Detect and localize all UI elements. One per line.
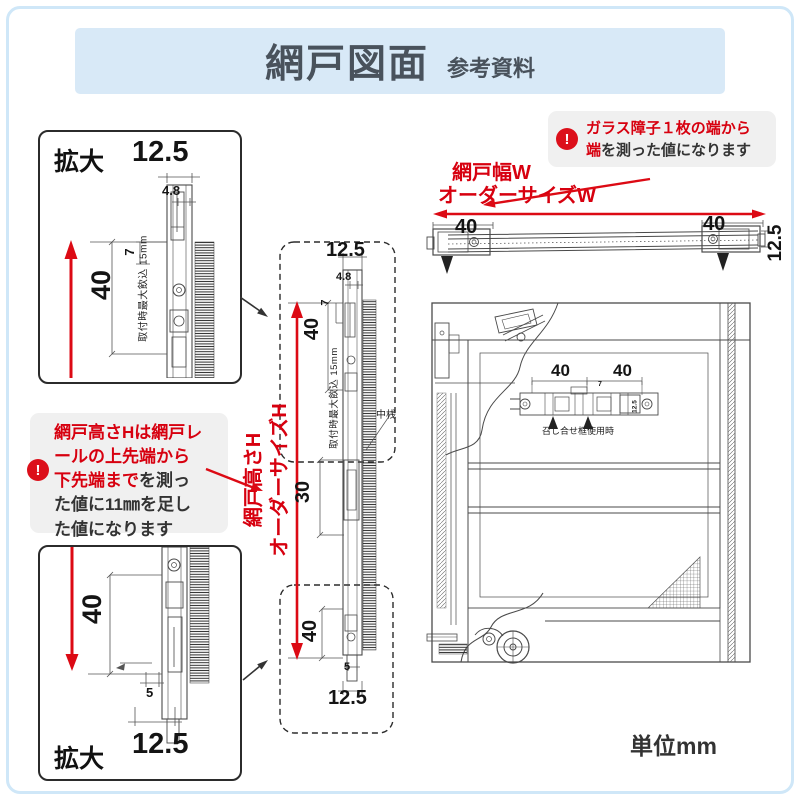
height-note-seg2: ールの上先端から xyxy=(54,447,190,466)
dim-12-5-top: 12.5 xyxy=(326,240,365,260)
glass-note-line1: ガラス障子１枚の端から xyxy=(586,120,751,137)
unit-note: 単位mm xyxy=(630,727,717,761)
height-note-seg3-red: 下先端まで xyxy=(54,471,139,490)
top-view-drawing xyxy=(425,195,785,287)
dim-12-5-depth: 12.5 xyxy=(762,222,788,264)
height-note-seg1: 網戸高さHは網戸レ xyxy=(54,423,202,442)
alert-icon: ! xyxy=(556,128,578,150)
glass-note-text: ガラス障子１枚の端から 端を測った値になります xyxy=(586,118,751,162)
height-note-seg3: を測っ xyxy=(139,471,190,490)
height-note-seg5: た値になります xyxy=(54,520,173,539)
dim-12-5: 12.5 xyxy=(132,730,188,759)
detail-box-top: 拡大 12.5 4.8 7 40 取付時最大飲込 15mm xyxy=(38,130,242,384)
dim-40-bottom: 40 xyxy=(298,618,322,644)
rail-profile xyxy=(343,270,362,681)
dim-40-right: 40 xyxy=(703,214,725,234)
engagement-note: 取付時最大飲込 15mm xyxy=(136,229,149,349)
dim-4-8: 4.8 xyxy=(162,184,180,197)
dim-12-5-small: 12.5 xyxy=(632,397,641,417)
detail-bottom-title: 拡大 xyxy=(54,739,104,775)
dim-7-small: 7 xyxy=(598,381,602,388)
dim-40-right: 40 xyxy=(613,362,632,379)
brush-hatch xyxy=(195,242,214,378)
glass-note-callout: ! ガラス障子１枚の端から 端を測った値になります xyxy=(548,111,776,167)
dim-40: 40 xyxy=(86,269,116,301)
screen-door-diagram-page: 網戸図面 参考資料 ! ガラス障子１枚の端から 端を測った値になります ! 網戸… xyxy=(0,0,800,800)
glass-note-line2-red: 端 xyxy=(586,142,601,159)
dim-40: 40 xyxy=(77,593,107,625)
dim-5: 5 xyxy=(146,686,153,699)
height-order-size-label: 網戸高さH オーダーサイズH xyxy=(239,379,295,581)
dim-5-bottom: 5 xyxy=(344,662,350,673)
left-edge-hatch xyxy=(437,393,446,608)
dim-40-left: 40 xyxy=(551,362,570,379)
brush-hatch xyxy=(190,547,209,683)
top-corner-mechanism xyxy=(435,303,558,455)
dim-12-5: 12.5 xyxy=(132,138,188,167)
engagement-note: 取付時最大飲込 15mm xyxy=(327,323,339,473)
width-label-line1: 網戸幅W xyxy=(452,162,531,185)
meeting-stile-label: 召し合せ框使用時 xyxy=(542,424,614,437)
page-subtitle: 参考資料 xyxy=(447,51,535,83)
width-label-line2: オーダーサイズW xyxy=(438,185,596,208)
height-note-callout: ! 網戸高さHは網戸レ ールの上先端から 下先端までを測っ た値に11㎜を足し … xyxy=(30,413,228,533)
title-banner: 網戸図面 参考資料 xyxy=(75,28,725,94)
height-label-line1: 網戸高さH xyxy=(241,403,267,556)
height-note-text: 網戸高さHは網戸レ ールの上先端から 下先端までを測っ た値に11㎜を足し た値… xyxy=(54,421,202,542)
front-view-drawing xyxy=(425,295,780,690)
right-edge-hatch xyxy=(728,303,735,662)
detail-top-title: 拡大 xyxy=(54,142,104,178)
screw-hatch xyxy=(439,644,467,654)
mid-rail-label: 中桟 xyxy=(376,406,396,421)
screen-mesh-triangle xyxy=(648,557,700,608)
dim-7: 7 xyxy=(320,296,333,310)
dim-40-left: 40 xyxy=(455,217,477,237)
height-note-seg4: た値に11㎜を足し xyxy=(54,495,191,514)
dim-12-5-bottom: 12.5 xyxy=(328,688,367,708)
alert-icon: ! xyxy=(27,459,49,481)
red-up-arrow xyxy=(65,240,78,378)
corner-markers xyxy=(441,253,729,274)
dim-4-8: 4.8 xyxy=(336,272,351,283)
detail-box-bottom: 40 5 12.5 拡大 xyxy=(38,545,242,781)
brush-hatch xyxy=(363,300,376,650)
height-label-line2: オーダーサイズH xyxy=(267,403,293,556)
glass-note-line2: を測った値になります xyxy=(601,142,751,159)
leader-arrowhead xyxy=(116,664,125,671)
dim-40-top: 40 xyxy=(300,316,324,342)
page-title: 網戸図面 xyxy=(265,33,429,89)
